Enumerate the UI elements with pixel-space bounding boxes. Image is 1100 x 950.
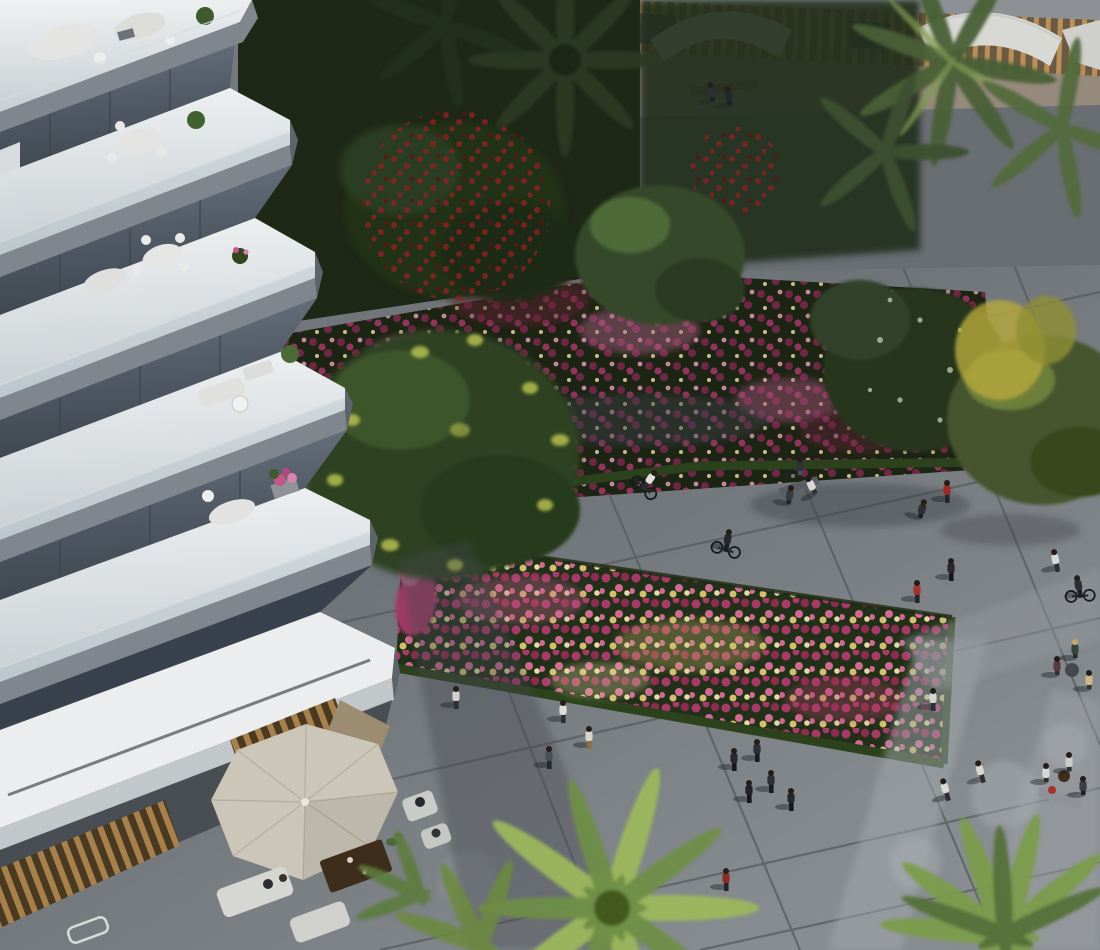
potted-plant: [281, 345, 299, 363]
seated-person: [432, 829, 441, 838]
rendering-frame: [0, 0, 1100, 950]
potted-plant: [187, 111, 205, 129]
potted-plant: [196, 7, 214, 25]
round-tree-center: [575, 185, 745, 325]
courtyard-rendering: [0, 0, 1100, 950]
seated-person: [263, 879, 273, 889]
red-bag: [1048, 786, 1056, 794]
table: [1065, 663, 1079, 677]
seated-person: [415, 797, 425, 807]
seated-person: [279, 874, 287, 882]
